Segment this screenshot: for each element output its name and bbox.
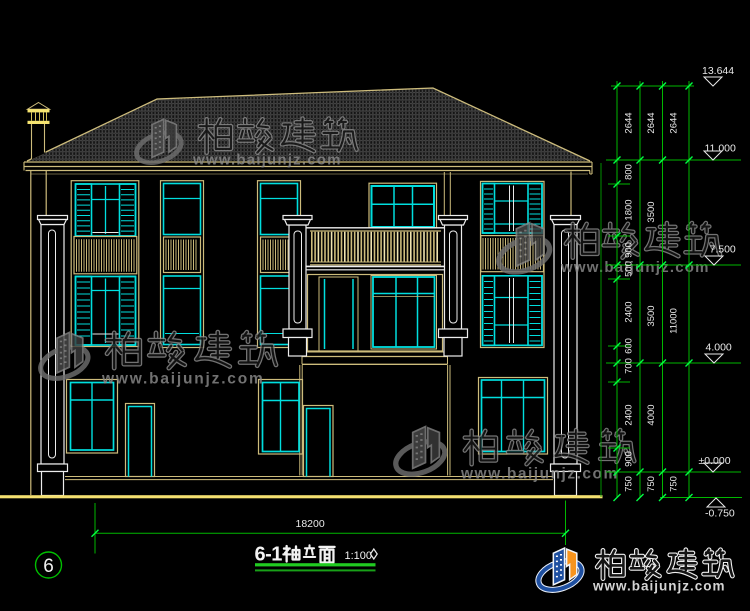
svg-text:4000: 4000 (646, 404, 657, 425)
svg-text:±0.000: ±0.000 (699, 455, 731, 467)
svg-text:6: 6 (43, 556, 54, 577)
svg-text:750: 750 (646, 476, 657, 492)
svg-text:2400: 2400 (624, 404, 635, 425)
svg-text:2644: 2644 (646, 112, 657, 133)
svg-text:1800: 1800 (624, 199, 635, 220)
svg-text:www.baijunjz.com: www.baijunjz.com (592, 579, 726, 594)
svg-text:2400: 2400 (624, 301, 635, 322)
svg-text:900: 900 (624, 451, 635, 467)
svg-text:2644: 2644 (624, 112, 635, 133)
svg-text:3500: 3500 (646, 305, 657, 326)
svg-text:-0.750: -0.750 (705, 508, 735, 520)
svg-text:7.500: 7.500 (710, 244, 736, 256)
svg-text:500: 500 (624, 261, 635, 277)
svg-text:18200: 18200 (296, 518, 325, 530)
svg-text:600: 600 (624, 338, 635, 354)
svg-text:800: 800 (624, 164, 635, 180)
svg-text:6-1: 6-1 (255, 544, 283, 566)
svg-text:3500: 3500 (646, 201, 657, 222)
svg-text:4.000: 4.000 (706, 342, 732, 354)
svg-text:750: 750 (669, 476, 680, 492)
svg-text:900: 900 (624, 242, 635, 258)
svg-text:www.baijunjz.com: www.baijunjz.com (192, 152, 342, 169)
svg-text:13.644: 13.644 (702, 65, 734, 77)
svg-text:750: 750 (624, 476, 635, 492)
svg-text:11000: 11000 (669, 308, 680, 334)
svg-text:2644: 2644 (669, 112, 680, 133)
svg-text:www.baijunjz.com: www.baijunjz.com (101, 371, 265, 388)
svg-text:www.baijunjz.com: www.baijunjz.com (460, 466, 619, 483)
svg-text:1:100: 1:100 (345, 550, 373, 562)
svg-text:700: 700 (624, 358, 635, 374)
svg-text:11.000: 11.000 (705, 143, 736, 155)
